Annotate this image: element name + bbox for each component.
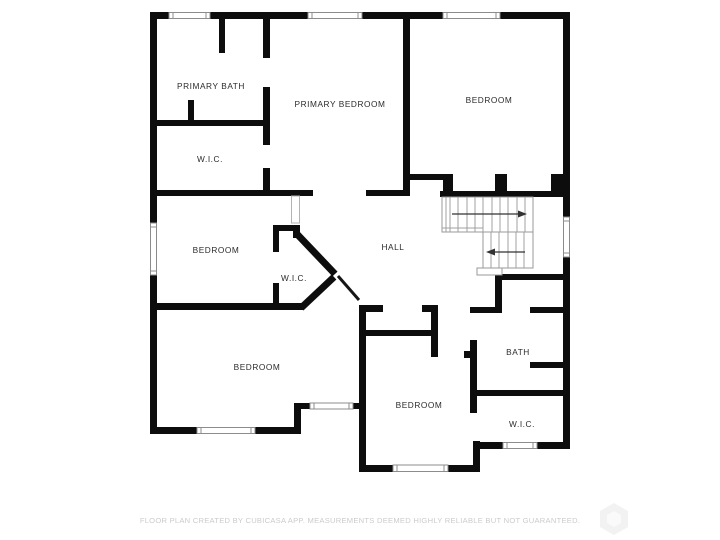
room-label-bath: BATH [506,347,530,357]
room-label-primary-bedroom: PRIMARY BEDROOM [295,99,386,109]
wall [150,303,303,310]
wall [263,19,270,58]
room-label-bedroom-south: BEDROOM [396,400,443,410]
wall [470,390,570,396]
wall [273,225,279,252]
stair-bottom-step [477,268,502,275]
window-icon [310,403,353,409]
wall [464,351,471,358]
floor-plan-canvas: PRIMARY BATH W.I.C. PRIMARY BEDROOM BEDR… [0,0,720,540]
window-icon [197,428,255,434]
room-label-wic-hall: W.I.C. [281,273,307,283]
wall [431,305,438,357]
window-icon [151,223,157,275]
door-leaf [338,276,359,300]
wall [150,190,313,196]
room-label-wic-primary: W.I.C. [197,154,223,164]
room-labels: PRIMARY BATH W.I.C. PRIMARY BEDROOM BEDR… [177,81,535,429]
wall [219,19,225,53]
cubicasa-watermark-icon [600,503,628,535]
wall [530,307,570,313]
wall [362,330,438,336]
staircase [442,197,533,275]
wall [495,174,507,191]
room-label-bedroom-ne: BEDROOM [466,95,513,105]
room-label-wic-se: W.I.C. [509,419,535,429]
wall [495,274,570,280]
window-icon [443,13,500,19]
door-opening [292,196,300,223]
wall [443,174,453,191]
wall [157,120,269,126]
wall [551,174,563,191]
wall [530,362,570,368]
window-icon [169,13,210,19]
wall [359,305,383,312]
wall [403,19,410,196]
wall [470,307,500,313]
room-label-primary-bath: PRIMARY BATH [177,81,245,91]
window-icon [393,465,448,472]
room-label-bedroom-west: BEDROOM [193,245,240,255]
wall-chamfer [296,233,335,274]
wall [470,340,477,413]
window-icon [564,217,570,257]
room-label-bedroom-sw: BEDROOM [234,362,281,372]
room-label-hall: HALL [382,242,405,252]
wall [440,191,570,197]
floor-plan-drawing: PRIMARY BATH W.I.C. PRIMARY BEDROOM BEDR… [0,0,720,540]
wall [263,87,270,145]
angled-walls [296,233,335,308]
footer-disclaimer: FLOOR PLAN CREATED BY CUBICASA APP. MEAS… [140,516,580,525]
window-icon [308,13,362,19]
window-icon [503,443,537,449]
